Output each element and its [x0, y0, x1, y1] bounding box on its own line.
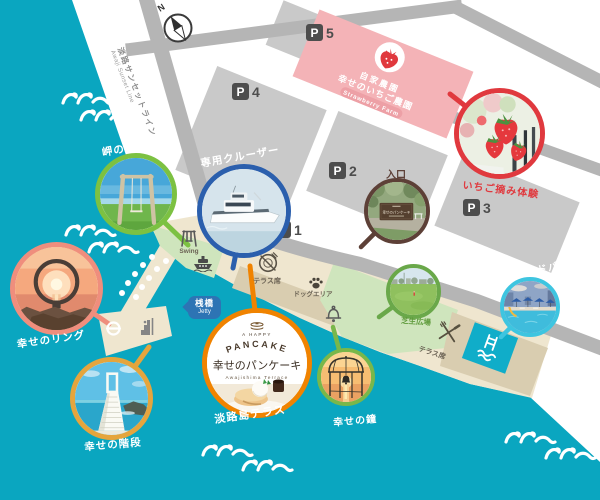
spot-circle-strawberry-picking: [454, 88, 545, 179]
spot-circle-happiness-bell: [317, 348, 375, 406]
parking-icon: P: [306, 24, 323, 41]
parking-marker-p4: P 4: [232, 83, 260, 100]
happiness-bell-photo: [321, 352, 371, 402]
parking-icon: P: [329, 162, 346, 179]
parking-number: 1: [294, 222, 302, 238]
parking-marker-p2: P 2: [329, 162, 357, 179]
entrance-photo: 幸せのパンケーキ: [368, 182, 426, 240]
terrace-dining-icon: [257, 252, 279, 274]
logo-a-happy: A HAPPY: [242, 332, 272, 337]
lawn-plaza-photo: [390, 268, 437, 315]
cape-swing-photo: [100, 158, 172, 230]
spot-circle-cruiser: [197, 164, 291, 258]
parking-number: 3: [483, 200, 491, 216]
spot-circle-lawn-plaza: [386, 264, 441, 319]
parking-marker-p5: P 5: [306, 24, 334, 41]
strawberry-picking-photo: [459, 93, 540, 174]
pancake-logo: A HAPPY PANCAKE 幸せのパンケーキ Awajishima Terr…: [207, 313, 307, 413]
parking-marker-p3: P 3: [463, 199, 491, 216]
swing-en-label: Swing: [174, 248, 204, 255]
parking-icon: P: [232, 83, 249, 100]
parking-number: 5: [326, 25, 334, 41]
entrance-sign-text: 幸せのパンケーキ: [382, 209, 410, 214]
jetty-stairs-icon: [139, 316, 155, 336]
ferry-icon: [192, 255, 214, 272]
poolside-bar-photo: [504, 281, 556, 333]
spot-circle-entrance: 幸せのパンケーキ: [364, 178, 430, 244]
happiness-stairs-photo: [75, 362, 148, 435]
cruiser-photo: [202, 169, 286, 253]
parking-number: 2: [349, 163, 357, 179]
spot-circle-happiness-stairs: [70, 357, 153, 440]
parking-number: 4: [252, 84, 260, 100]
spot-circle-happiness-ring: [10, 242, 103, 335]
dog-area-label: ドッグエリア: [292, 288, 334, 298]
logo-name-jp: 幸せのパンケーキ: [213, 359, 302, 372]
swing-icon: [179, 228, 199, 247]
facility-map: 自家農園 幸せのいちご農園 Strawberry Farm: [0, 0, 600, 500]
happiness-ring-photo: [15, 247, 98, 330]
bell-icon: [325, 305, 342, 324]
spot-circle-poolside-bar: [500, 277, 560, 337]
jetty-ring-icon: [105, 320, 122, 337]
terrace-seats-label-1: テラス席: [247, 276, 287, 286]
spot-circle-cape-swing: [95, 153, 177, 235]
parking-icon: P: [463, 199, 480, 216]
jetty-label-jp: 桟橋: [195, 299, 214, 309]
